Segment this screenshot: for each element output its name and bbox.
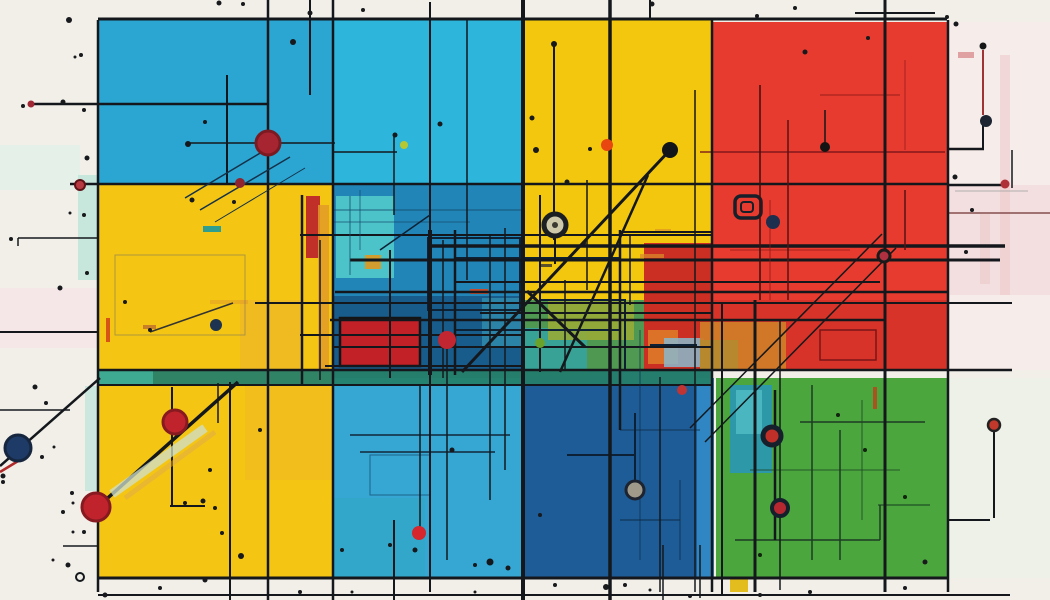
paint-speckle [290, 39, 296, 45]
paint-wash [980, 214, 990, 284]
circle-node [552, 222, 558, 228]
paint-wash [0, 145, 80, 190]
paint-speckle [217, 1, 222, 6]
circle-node [75, 180, 85, 190]
paint-speckle [533, 147, 539, 153]
paint-speckle [393, 133, 398, 138]
paint-wash [85, 386, 98, 491]
color-block [333, 20, 523, 184]
paint-dash [106, 318, 110, 342]
circle-node [980, 115, 992, 127]
paint-speckle [103, 593, 108, 598]
circle-node [551, 41, 557, 47]
paint-speckle [213, 506, 217, 510]
paint-speckle [53, 446, 56, 449]
paint-speckle [866, 36, 870, 40]
paint-speckle [538, 513, 542, 517]
paint-speckle [970, 208, 974, 212]
paint-dash [640, 254, 664, 258]
circle-node [400, 141, 408, 149]
abstract-painting-canvas [0, 0, 1050, 600]
circle-node [626, 481, 644, 499]
paint-speckle [148, 328, 152, 332]
paint-speckle [232, 200, 236, 204]
color-block [333, 498, 425, 578]
circle-node [412, 526, 426, 540]
paint-speckle [69, 212, 72, 215]
circle-node [763, 427, 781, 445]
paint-speckle [954, 22, 959, 27]
circle-node [535, 338, 545, 348]
paint-speckle [52, 559, 55, 562]
paint-speckle [72, 531, 75, 534]
paint-wash [948, 378, 1050, 578]
circle-node [878, 250, 890, 262]
paint-speckle [70, 491, 74, 495]
circle-node [988, 419, 1000, 431]
paint-speckle [793, 6, 797, 10]
paint-speckle [66, 17, 72, 23]
paint-wash [0, 288, 98, 348]
paint-speckle [758, 553, 762, 557]
circle-node [766, 215, 780, 229]
paint-speckle [650, 2, 655, 7]
circle-node [487, 559, 494, 566]
circle-node [980, 43, 987, 50]
circle-node [677, 385, 687, 395]
paint-dash [958, 52, 974, 58]
circle-node [163, 410, 187, 434]
paint-speckle [623, 583, 627, 587]
paint-speckle [413, 548, 418, 553]
paint-speckle [953, 175, 958, 180]
paint-speckle [340, 548, 344, 552]
paint-speckle [61, 510, 65, 514]
paint-speckle [808, 590, 812, 594]
color-block [700, 340, 738, 370]
paint-speckle [61, 100, 66, 105]
paint-speckle [66, 563, 71, 568]
paint-speckle [903, 586, 907, 590]
paint-dash [873, 387, 877, 409]
paint-speckle [82, 530, 86, 534]
paint-speckle [85, 156, 90, 161]
paint-speckle [40, 455, 44, 459]
paint-speckle [183, 501, 187, 505]
paint-speckle [603, 584, 609, 590]
color-block [482, 298, 523, 348]
circle-node [235, 178, 245, 188]
circle-node [256, 131, 280, 155]
paint-dash [210, 300, 248, 304]
color-block [340, 318, 420, 366]
paint-speckle [450, 448, 455, 453]
paint-speckle [33, 385, 38, 390]
paint-wash [948, 185, 1050, 295]
paint-speckle [361, 8, 365, 12]
paint-speckle [964, 250, 968, 254]
paint-dash [365, 255, 381, 269]
paint-speckle [565, 180, 570, 185]
paint-speckle [258, 428, 262, 432]
abstract-painting [0, 0, 1050, 600]
color-block [306, 196, 320, 258]
paint-speckle [649, 589, 652, 592]
circle-node [438, 331, 456, 349]
paint-speckle [298, 590, 302, 594]
paint-speckle [530, 116, 535, 121]
paint-speckle [863, 448, 867, 452]
circle-node [210, 319, 222, 331]
color-block [98, 20, 333, 184]
circle-node [185, 141, 191, 147]
paint-speckle [1, 474, 6, 479]
paint-speckle [220, 531, 224, 535]
color-block [240, 300, 302, 378]
paint-speckle [945, 15, 949, 19]
paint-speckle [553, 583, 557, 587]
paint-speckle [473, 563, 477, 567]
paint-speckle [203, 578, 208, 583]
paint-speckle [1, 480, 5, 484]
circle-node [772, 500, 788, 516]
paint-speckle [74, 56, 77, 59]
color-block [730, 578, 748, 592]
paint-speckle [351, 591, 354, 594]
paint-speckle [190, 198, 195, 203]
paint-speckle [79, 53, 83, 57]
paint-speckle [474, 591, 477, 594]
paint-speckle [903, 495, 907, 499]
paint-speckle [758, 593, 762, 597]
circle-node [601, 139, 613, 151]
circle-node [5, 435, 31, 461]
paint-speckle [85, 271, 89, 275]
paint-speckle [836, 413, 840, 417]
circle-node [1001, 180, 1010, 189]
paint-speckle [438, 122, 443, 127]
paint-speckle [21, 104, 25, 108]
paint-speckle [582, 241, 586, 245]
paint-speckle [506, 566, 511, 571]
paint-speckle [688, 594, 692, 598]
paint-speckle [308, 11, 313, 16]
color-block [664, 338, 704, 367]
paint-speckle [388, 543, 392, 547]
paint-speckle [241, 2, 245, 6]
paint-speckle [123, 300, 127, 304]
paint-dash [540, 264, 552, 267]
paint-speckle [208, 468, 212, 472]
circle-node [820, 142, 830, 152]
paint-speckle [803, 50, 808, 55]
paint-speckle [72, 502, 75, 505]
paint-speckle [238, 553, 244, 559]
circle-node [28, 101, 35, 108]
paint-dash [203, 226, 221, 232]
circle-node [82, 493, 110, 521]
color-block [98, 371, 153, 385]
paint-speckle [58, 286, 63, 291]
paint-speckle [82, 213, 86, 217]
paint-speckle [44, 401, 48, 405]
paint-speckle [755, 14, 759, 18]
paint-speckle [82, 108, 86, 112]
paint-speckle [9, 237, 13, 241]
paint-speckle [923, 560, 928, 565]
paint-speckle [203, 120, 207, 124]
paint-speckle [158, 586, 162, 590]
circle-node [662, 142, 678, 158]
paint-wash [1000, 55, 1010, 295]
color-block [245, 385, 333, 480]
paint-speckle [201, 499, 206, 504]
paint-speckle [588, 147, 592, 151]
